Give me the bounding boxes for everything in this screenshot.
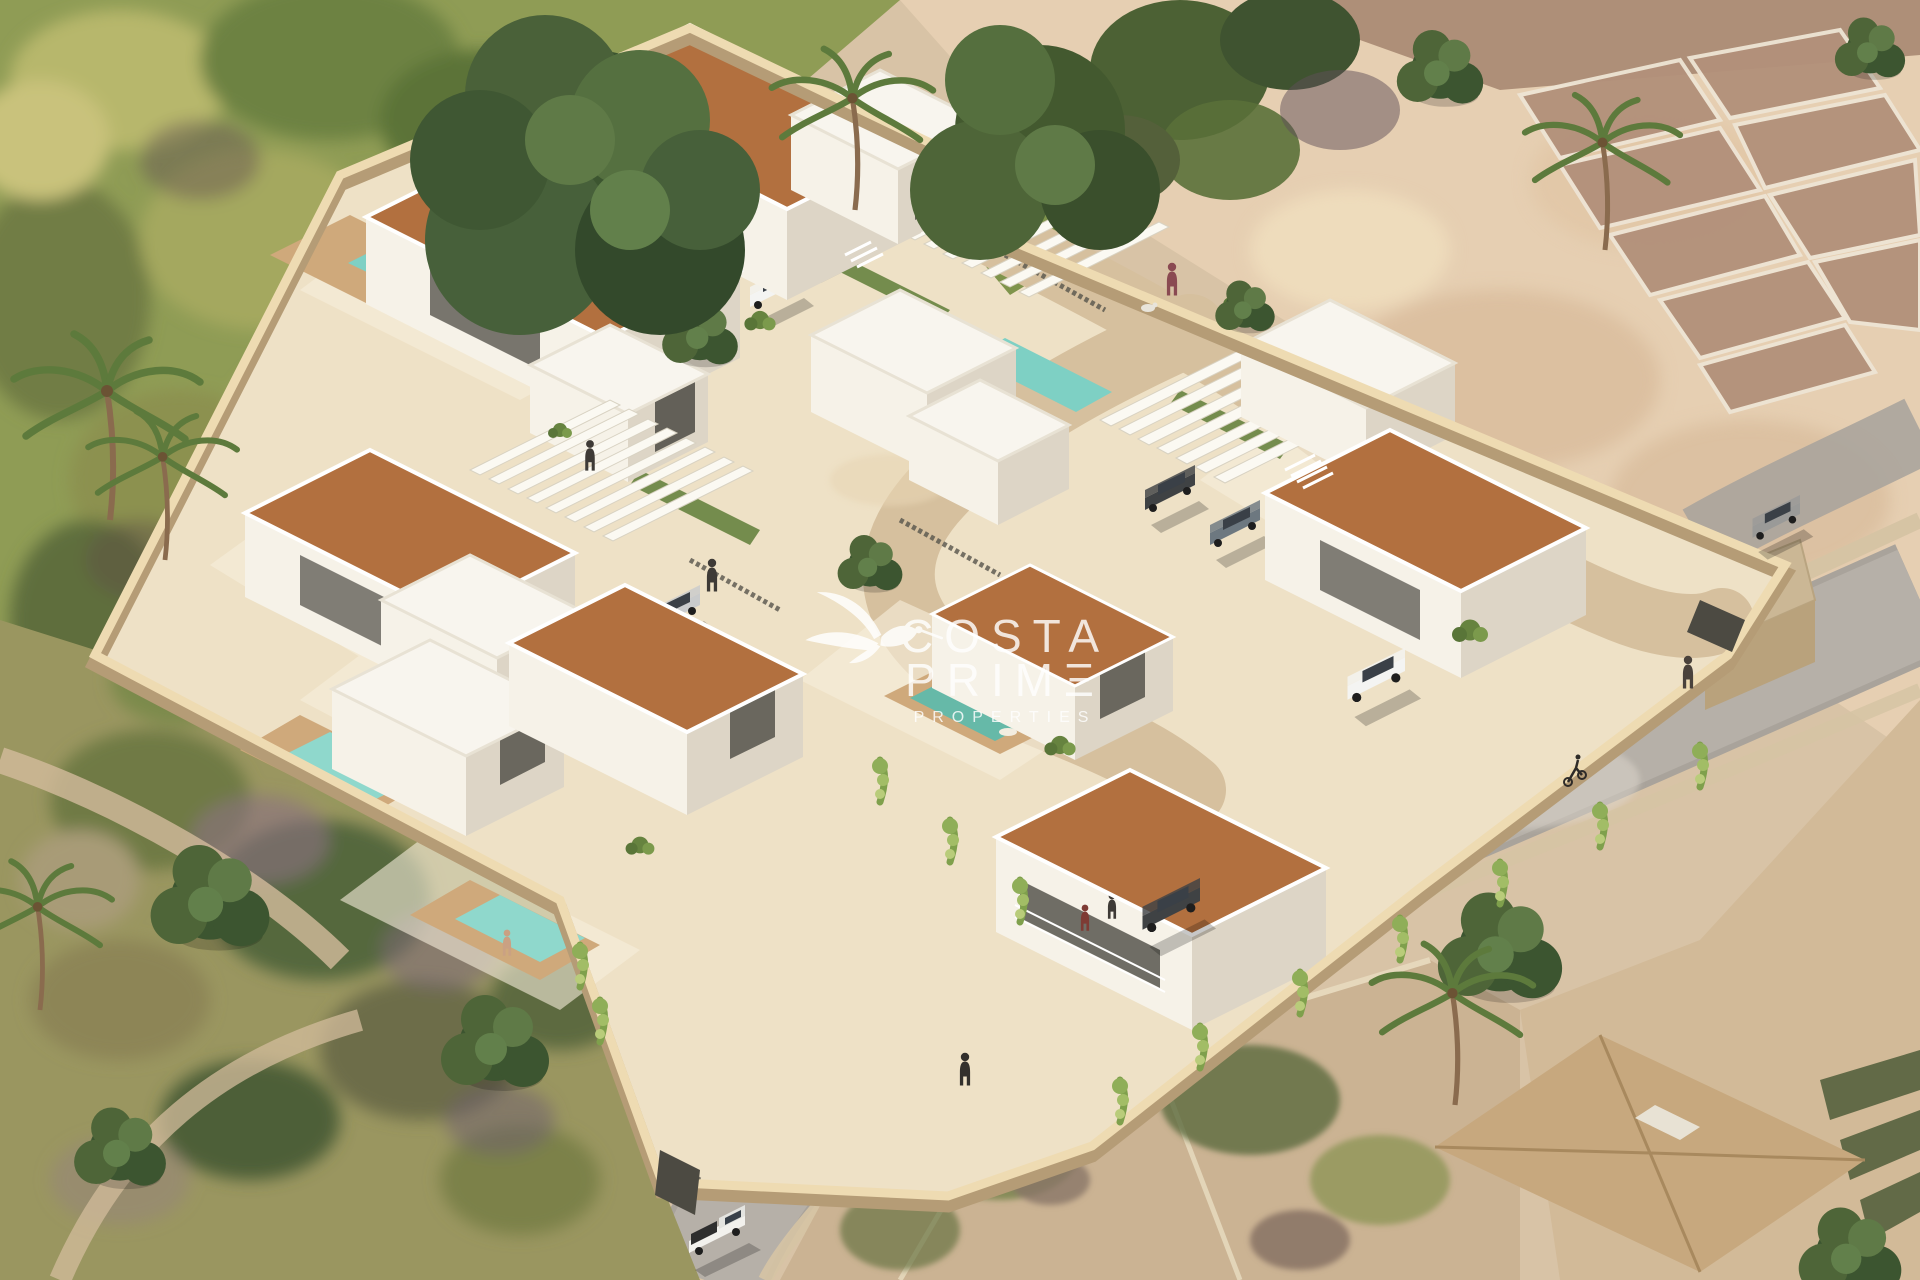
scene-render: COSTA PRIMΞ PROPERTIES: [0, 0, 1920, 1280]
brand-line-2: PRIMΞ: [905, 654, 1105, 706]
brand-line-3: PROPERTIES: [914, 709, 1097, 726]
render-stage: COSTA PRIMΞ PROPERTIES: [0, 0, 1920, 1280]
